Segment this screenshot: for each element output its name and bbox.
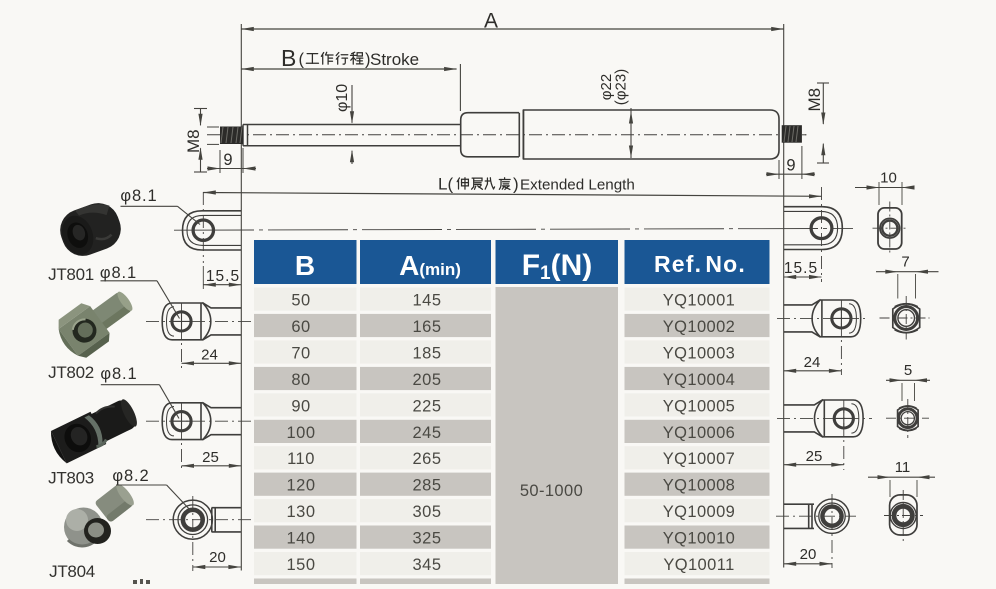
svg-text:φ10: φ10 <box>334 84 351 112</box>
svg-text:11: 11 <box>895 459 911 476</box>
svg-text:YQ10007: YQ10007 <box>663 450 736 468</box>
svg-text:305: 305 <box>412 503 441 521</box>
svg-text:150: 150 <box>286 556 315 574</box>
svg-text:285: 285 <box>412 477 441 495</box>
svg-text:F1(N): F1(N) <box>522 249 593 284</box>
svg-text:YQ10001: YQ10001 <box>663 292 736 310</box>
svg-text:50-1000: 50-1000 <box>520 482 583 500</box>
svg-text:φ8.2: φ8.2 <box>112 467 149 485</box>
svg-text:165: 165 <box>412 318 441 336</box>
svg-text:JT804: JT804 <box>49 562 95 581</box>
svg-text:225: 225 <box>412 397 441 415</box>
svg-text:20: 20 <box>800 546 817 563</box>
svg-text:YQ10009: YQ10009 <box>663 503 736 521</box>
svg-text:15.5: 15.5 <box>206 268 240 285</box>
svg-text:M8: M8 <box>805 88 824 112</box>
svg-text:YQ10004: YQ10004 <box>663 371 736 389</box>
svg-text:L(: L( <box>438 175 453 194</box>
svg-text:185: 185 <box>412 344 441 362</box>
svg-text:24: 24 <box>201 347 218 364</box>
svg-text:JT803: JT803 <box>48 469 94 488</box>
svg-text:130: 130 <box>286 503 315 521</box>
svg-text:25: 25 <box>806 448 823 465</box>
svg-text:): ) <box>513 175 519 194</box>
svg-text:50: 50 <box>291 292 310 310</box>
svg-text:YQ10006: YQ10006 <box>663 424 736 442</box>
svg-text:15.5: 15.5 <box>784 260 818 277</box>
svg-text:120: 120 <box>286 477 315 495</box>
svg-text:145: 145 <box>412 292 441 310</box>
svg-text:YQ10005: YQ10005 <box>663 397 736 415</box>
svg-text:70: 70 <box>291 344 310 362</box>
svg-text:90: 90 <box>291 397 310 415</box>
svg-text:B: B <box>281 45 296 71</box>
svg-text:9: 9 <box>223 151 232 169</box>
svg-text:60: 60 <box>291 318 310 336</box>
svg-text:JT802: JT802 <box>48 363 94 382</box>
svg-text:YQ10010: YQ10010 <box>663 530 736 548</box>
svg-text:φ8.1: φ8.1 <box>100 365 137 383</box>
svg-text:140: 140 <box>286 530 315 548</box>
svg-text:(φ23): (φ23) <box>613 69 630 105</box>
svg-text:265: 265 <box>412 450 441 468</box>
svg-text:Stroke: Stroke <box>370 50 419 69</box>
svg-text:7: 7 <box>901 254 909 271</box>
svg-text:A: A <box>484 10 498 33</box>
svg-text:205: 205 <box>412 371 441 389</box>
svg-text:110: 110 <box>287 450 315 468</box>
svg-text:80: 80 <box>291 371 310 389</box>
svg-text:100: 100 <box>286 424 315 442</box>
svg-text:20: 20 <box>209 549 226 566</box>
svg-text:10: 10 <box>880 170 897 187</box>
svg-text:M8: M8 <box>184 129 203 153</box>
svg-text:24: 24 <box>804 354 821 371</box>
svg-text:φ8.1: φ8.1 <box>100 264 137 282</box>
svg-text:325: 325 <box>412 530 441 548</box>
svg-text:245: 245 <box>412 424 441 442</box>
svg-text:YQ10002: YQ10002 <box>663 318 736 336</box>
svg-text:(: ( <box>299 51 305 69</box>
svg-text:YQ10008: YQ10008 <box>663 477 736 495</box>
svg-text:B: B <box>295 250 315 281</box>
svg-text:9: 9 <box>786 157 795 175</box>
svg-text:345: 345 <box>412 556 441 574</box>
svg-text:Ref. No.: Ref. No. <box>654 251 746 277</box>
svg-text:25: 25 <box>202 449 219 466</box>
svg-text:YQ10011: YQ10011 <box>663 556 734 574</box>
svg-text:JT801: JT801 <box>48 265 94 284</box>
svg-text:YQ10003: YQ10003 <box>663 344 736 362</box>
svg-text:Extended Length: Extended Length <box>520 177 635 194</box>
svg-text:5: 5 <box>904 362 912 379</box>
svg-text:φ8.1: φ8.1 <box>120 187 157 205</box>
